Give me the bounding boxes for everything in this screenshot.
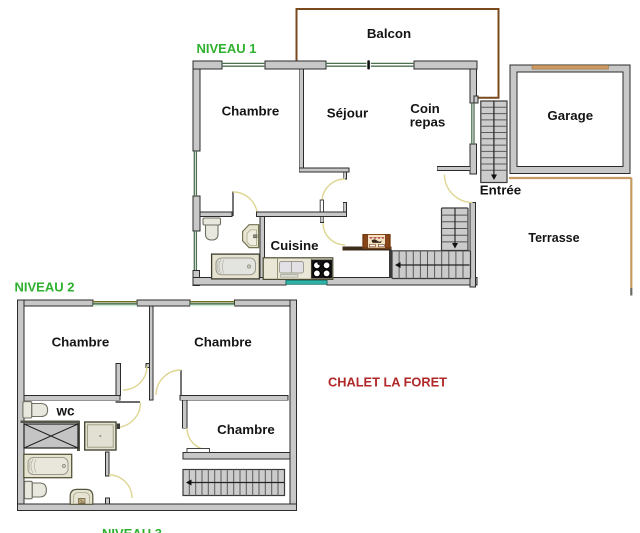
svg-text:repas: repas bbox=[410, 115, 445, 130]
svg-text:NIVEAU 3: NIVEAU 3 bbox=[102, 526, 162, 533]
svg-text:Séjour: Séjour bbox=[327, 106, 368, 121]
svg-text:Chambre: Chambre bbox=[194, 335, 252, 350]
svg-text:NIVEAU 2: NIVEAU 2 bbox=[15, 280, 75, 295]
svg-text:CHALET LA FORET: CHALET LA FORET bbox=[328, 375, 447, 390]
svg-text:Terrasse: Terrasse bbox=[528, 231, 579, 245]
svg-text:wc: wc bbox=[56, 404, 76, 419]
svg-text:Entrée: Entrée bbox=[480, 183, 521, 198]
svg-text:Chambre: Chambre bbox=[52, 335, 110, 350]
svg-text:NIVEAU 1: NIVEAU 1 bbox=[197, 41, 257, 56]
svg-text:Garage: Garage bbox=[547, 108, 593, 123]
svg-text:Cuisine: Cuisine bbox=[270, 238, 318, 253]
svg-text:Chambre: Chambre bbox=[222, 104, 280, 119]
svg-text:Balcon: Balcon bbox=[367, 26, 411, 41]
svg-text:Chambre: Chambre bbox=[217, 422, 275, 437]
